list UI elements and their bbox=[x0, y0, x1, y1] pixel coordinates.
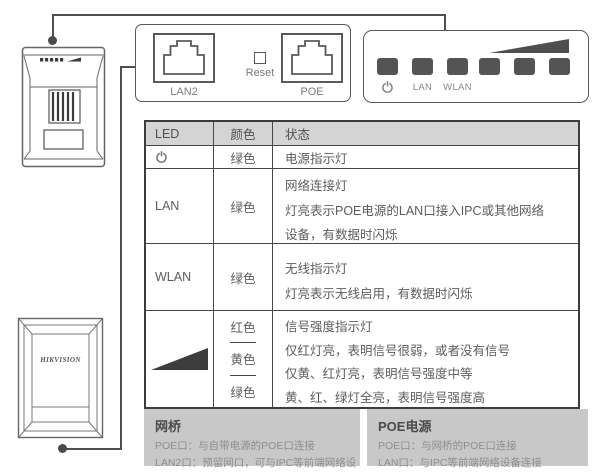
table-row-lan: LAN 绿色 网络连接灯 灯亮表示POE电源的LAN口接入IPC或其他网络 设备… bbox=[146, 168, 578, 243]
signal-green-led bbox=[549, 58, 570, 75]
poe-port-icon bbox=[281, 33, 343, 83]
bridge-device-back-drawing bbox=[21, 46, 106, 168]
table-row-wlan: WLAN 绿色 无线指示灯 灯亮表示无线启用，有数据时闪烁 bbox=[146, 243, 578, 310]
signal-strength-wedge-icon bbox=[151, 348, 208, 370]
connector-line-bottom bbox=[62, 448, 122, 450]
wlan-color-cell: 绿色 bbox=[214, 244, 273, 310]
table-header-row: LED 颜色 状态 bbox=[146, 122, 578, 145]
signal-status-cell: 信号强度指示灯 仅红灯亮，表明信号很弱，或者没有信号 仅黄、红灯亮，表明信号强度… bbox=[273, 311, 578, 407]
signal-led-cell bbox=[146, 311, 214, 407]
poe-port-label: POE bbox=[281, 86, 343, 98]
connector-line-top bbox=[52, 14, 446, 16]
power-led bbox=[377, 58, 398, 75]
wlan-led bbox=[447, 58, 468, 75]
ports-panel: LAN2 Reset POE bbox=[135, 24, 351, 102]
bridge-legend-title: 网桥 bbox=[155, 416, 360, 435]
connector-dot-bottom bbox=[58, 444, 67, 453]
connector-line-mid-vertical bbox=[120, 66, 122, 450]
lan-led bbox=[412, 58, 433, 75]
lan2-port-label: LAN2 bbox=[153, 86, 215, 98]
bridge-device-front-drawing: HIKVISION bbox=[17, 317, 104, 439]
reset-label: Reset bbox=[234, 67, 286, 79]
poe-legend-lines: POE口：与网桥的POE口连接 LAN口：与IPC等前端网络设备连接 bbox=[378, 438, 588, 472]
signal-strength-wedge-icon bbox=[489, 39, 569, 53]
lan2-port-icon bbox=[153, 33, 215, 83]
power-led-cell bbox=[146, 146, 214, 168]
signal-color-cell: 红色 黄色 绿色 bbox=[214, 311, 273, 407]
poe-legend-title: POE电源 bbox=[378, 416, 588, 435]
diagram-canvas: LAN2 Reset POE LAN WLAN bbox=[0, 0, 600, 474]
connector-line-to-ports-panel bbox=[120, 66, 136, 68]
wlan-led-label: WLAN bbox=[437, 82, 478, 93]
wlan-status-cell: 无线指示灯 灯亮表示无线启用，有数据时闪烁 bbox=[273, 244, 578, 310]
table-row-signal: 红色 黄色 绿色 信号强度指示灯 仅红灯亮，表明信号很弱，或者没有信号 仅黄、红… bbox=[146, 310, 578, 407]
bridge-legend-box: 网桥 POE口：与自带电源的POE口连接 LAN2口：预留网口，可与IPC等前端… bbox=[144, 409, 360, 466]
signal-color-yellow: 黄色 bbox=[230, 342, 255, 374]
reset-button[interactable] bbox=[254, 52, 266, 64]
signal-yellow-led bbox=[514, 58, 535, 75]
connector-dot-top bbox=[48, 36, 57, 45]
lan-color-cell: 绿色 bbox=[214, 169, 273, 243]
wlan-led-cell: WLAN bbox=[146, 244, 214, 310]
signal-color-red: 红色 bbox=[230, 311, 255, 342]
power-color-cell: 绿色 bbox=[214, 146, 273, 168]
bridge-legend-lines: POE口：与自带电源的POE口连接 LAN2口：预留网口，可与IPC等前端网络设… bbox=[155, 438, 360, 474]
led-status-table: LED 颜色 状态 绿色 电源指示灯 LAN 绿色 网络连接灯 灯亮表示POE电… bbox=[144, 120, 580, 409]
lan-led-cell: LAN bbox=[146, 169, 214, 243]
poe-legend-box: POE电源 POE口：与网桥的POE口连接 LAN口：与IPC等前端网络设备连接 bbox=[367, 409, 588, 466]
lan-status-cell: 网络连接灯 灯亮表示POE电源的LAN口接入IPC或其他网络 设备，有数据时闪烁 bbox=[273, 169, 578, 243]
header-led: LED bbox=[146, 122, 214, 145]
brand-text: HIKVISION bbox=[39, 356, 81, 364]
power-status-cell: 电源指示灯 bbox=[273, 146, 578, 168]
header-color: 颜色 bbox=[214, 122, 273, 145]
power-icon bbox=[381, 80, 394, 94]
signal-red-led bbox=[479, 58, 500, 75]
signal-color-green: 绿色 bbox=[230, 375, 255, 407]
led-indicator-panel: LAN WLAN bbox=[363, 30, 589, 103]
header-status: 状态 bbox=[273, 122, 578, 145]
table-row-power: 绿色 电源指示灯 bbox=[146, 145, 578, 168]
power-icon bbox=[155, 150, 168, 164]
